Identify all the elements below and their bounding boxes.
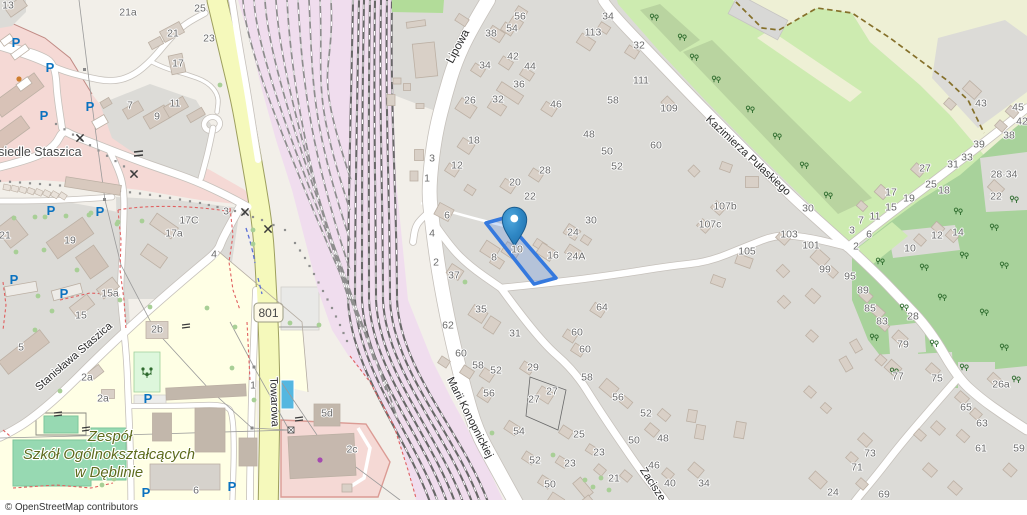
svg-text:22: 22 (524, 191, 536, 203)
svg-text:24: 24 (827, 487, 839, 499)
svg-text:45: 45 (1012, 102, 1024, 114)
svg-text:15: 15 (885, 202, 897, 214)
svg-text:42: 42 (1016, 116, 1027, 128)
svg-text:65: 65 (960, 402, 972, 414)
svg-text:21: 21 (0, 230, 11, 242)
svg-text:26: 26 (464, 95, 476, 107)
svg-text:107b: 107b (713, 201, 737, 213)
svg-text:37: 37 (448, 270, 460, 282)
svg-text:16: 16 (547, 250, 559, 262)
svg-text:© OpenStreetMap contributors: © OpenStreetMap contributors (5, 502, 138, 513)
svg-text:17: 17 (885, 187, 897, 199)
svg-text:P: P (10, 272, 19, 287)
svg-text:18: 18 (468, 135, 480, 147)
svg-text:10: 10 (904, 243, 916, 255)
svg-text:75: 75 (931, 373, 943, 385)
svg-text:21: 21 (608, 473, 620, 485)
svg-text:7: 7 (858, 215, 864, 227)
svg-text:52: 52 (529, 455, 541, 467)
svg-text:77: 77 (892, 371, 904, 383)
svg-text:P: P (142, 485, 151, 500)
svg-text:46: 46 (550, 99, 562, 111)
svg-text:48: 48 (657, 433, 669, 445)
svg-text:101: 101 (802, 240, 820, 252)
svg-text:21a: 21a (119, 7, 137, 19)
svg-text:P: P (47, 203, 56, 218)
svg-text:23: 23 (564, 458, 576, 470)
svg-text:15a: 15a (101, 288, 119, 300)
svg-text:19: 19 (64, 235, 76, 247)
svg-text:25: 25 (573, 429, 585, 441)
svg-text:50: 50 (601, 146, 613, 158)
svg-text:22: 22 (990, 191, 1002, 203)
svg-text:107c: 107c (699, 219, 722, 231)
svg-text:113: 113 (585, 27, 602, 39)
svg-text:46: 46 (648, 460, 660, 472)
svg-text:7: 7 (127, 100, 133, 112)
svg-text:50: 50 (628, 435, 640, 447)
svg-text:w Dęblinie: w Dęblinie (75, 465, 143, 481)
svg-text:4: 4 (429, 228, 435, 240)
svg-text:23: 23 (203, 33, 215, 45)
svg-text:6: 6 (193, 485, 199, 497)
svg-text:9: 9 (154, 111, 160, 123)
svg-text:8: 8 (491, 252, 497, 264)
svg-text:54: 54 (506, 23, 518, 35)
svg-text:52: 52 (640, 408, 652, 420)
svg-text:28·34: 28·34 (991, 169, 1018, 181)
svg-text:85: 85 (864, 303, 876, 315)
svg-text:10: 10 (511, 244, 523, 256)
svg-text:32: 32 (633, 40, 645, 52)
svg-text:21: 21 (167, 28, 179, 40)
svg-text:12: 12 (451, 160, 463, 172)
svg-text:11: 11 (870, 211, 881, 223)
svg-text:2a: 2a (81, 372, 93, 384)
svg-text:69: 69 (878, 489, 890, 501)
svg-text:Zespół: Zespół (87, 429, 133, 445)
svg-text:25: 25 (194, 3, 206, 15)
svg-text:36: 36 (513, 79, 525, 91)
svg-text:P: P (86, 99, 95, 114)
svg-text:42: 42 (507, 51, 519, 63)
svg-text:17C: 17C (179, 215, 199, 227)
svg-text:Towarowa: Towarowa (267, 377, 281, 428)
svg-text:26a: 26a (992, 379, 1010, 391)
svg-text:60: 60 (571, 327, 583, 339)
svg-text:18: 18 (938, 185, 950, 197)
svg-text:103: 103 (780, 229, 798, 241)
svg-text:95: 95 (844, 271, 856, 283)
svg-text:2: 2 (433, 257, 439, 269)
svg-text:83: 83 (876, 316, 888, 328)
svg-text:27: 27 (919, 163, 931, 175)
svg-text:62: 62 (442, 320, 454, 332)
svg-text:39: 39 (973, 139, 985, 151)
svg-text:P: P (12, 35, 21, 50)
svg-text:P: P (60, 286, 69, 301)
svg-text:38: 38 (485, 28, 497, 40)
svg-text:13: 13 (2, 0, 14, 12)
svg-text:6: 6 (444, 210, 450, 222)
svg-text:31: 31 (947, 159, 959, 171)
svg-text:64: 64 (596, 302, 608, 314)
svg-text:54: 54 (513, 426, 525, 438)
svg-text:79: 79 (897, 339, 909, 351)
svg-text:12: 12 (931, 230, 943, 242)
svg-text:17a: 17a (165, 228, 183, 240)
svg-text:25: 25 (925, 179, 937, 191)
svg-text:Osiedle Staszica: Osiedle Staszica (0, 145, 82, 159)
svg-text:34: 34 (602, 11, 614, 23)
svg-text:73: 73 (864, 448, 876, 460)
svg-text:27: 27 (528, 394, 540, 406)
svg-text:4: 4 (211, 249, 217, 261)
svg-text:38: 38 (1003, 130, 1015, 142)
svg-text:48: 48 (583, 129, 595, 141)
svg-text:99: 99 (819, 264, 831, 276)
svg-text:1: 1 (250, 380, 256, 392)
svg-text:35: 35 (475, 304, 487, 316)
svg-text:23: 23 (593, 447, 605, 459)
svg-text:P: P (40, 108, 49, 123)
svg-text:20: 20 (509, 177, 521, 189)
svg-text:60: 60 (579, 344, 591, 356)
svg-text:58: 58 (472, 360, 484, 372)
svg-text:1: 1 (424, 173, 430, 185)
svg-text:50: 50 (544, 479, 556, 491)
svg-text:52: 52 (611, 161, 623, 173)
svg-text:30: 30 (585, 215, 597, 227)
svg-text:2b: 2b (151, 324, 163, 336)
svg-text:60: 60 (455, 348, 467, 360)
svg-text:56: 56 (483, 388, 495, 400)
svg-text:14: 14 (952, 227, 964, 239)
svg-text:44: 44 (524, 61, 536, 73)
svg-text:61: 61 (975, 443, 987, 455)
svg-text:24A: 24A (567, 251, 586, 263)
svg-text:28: 28 (907, 311, 919, 323)
svg-text:801: 801 (258, 306, 278, 320)
svg-text:34: 34 (698, 478, 710, 490)
svg-text:28: 28 (539, 165, 551, 177)
svg-text:24: 24 (567, 227, 579, 239)
svg-text:43: 43 (975, 98, 987, 110)
svg-text:P: P (96, 204, 105, 219)
svg-text:58: 58 (607, 95, 619, 107)
svg-text:3: 3 (429, 153, 435, 165)
svg-text:5: 5 (18, 342, 24, 354)
svg-text:27: 27 (546, 386, 558, 398)
svg-text:3: 3 (223, 206, 229, 218)
svg-text:33: 33 (961, 152, 973, 164)
svg-text:P: P (144, 391, 153, 406)
svg-text:5d: 5d (321, 408, 333, 420)
svg-text:60: 60 (650, 140, 662, 152)
svg-text:31: 31 (509, 328, 521, 340)
svg-text:56: 56 (612, 392, 624, 404)
svg-text:40: 40 (664, 478, 676, 490)
svg-text:59: 59 (1013, 443, 1025, 455)
svg-text:P: P (46, 60, 55, 75)
svg-text:2a: 2a (97, 393, 109, 405)
svg-text:2c: 2c (346, 444, 357, 456)
svg-text:58: 58 (581, 372, 593, 384)
svg-text:19: 19 (903, 193, 915, 205)
svg-text:32: 32 (492, 94, 504, 106)
svg-text:17: 17 (172, 58, 184, 70)
svg-text:111: 111 (633, 75, 649, 87)
svg-text:P: P (228, 479, 237, 494)
svg-text:30: 30 (802, 203, 814, 215)
svg-text:6: 6 (866, 229, 872, 241)
svg-text:2: 2 (853, 241, 859, 253)
svg-text:Szkół Ogólnokształcących: Szkół Ogólnokształcących (23, 447, 195, 463)
svg-text:89: 89 (857, 285, 869, 297)
svg-text:34: 34 (479, 60, 491, 72)
svg-text:15: 15 (75, 310, 87, 322)
svg-text:109: 109 (660, 103, 678, 115)
svg-text:71: 71 (851, 462, 863, 474)
svg-text:56: 56 (514, 11, 526, 23)
svg-text:3: 3 (849, 225, 855, 237)
svg-text:11: 11 (170, 98, 181, 110)
svg-text:105: 105 (738, 246, 756, 258)
svg-text:63: 63 (976, 418, 988, 430)
svg-text:52: 52 (490, 365, 502, 377)
svg-text:29: 29 (527, 362, 539, 374)
